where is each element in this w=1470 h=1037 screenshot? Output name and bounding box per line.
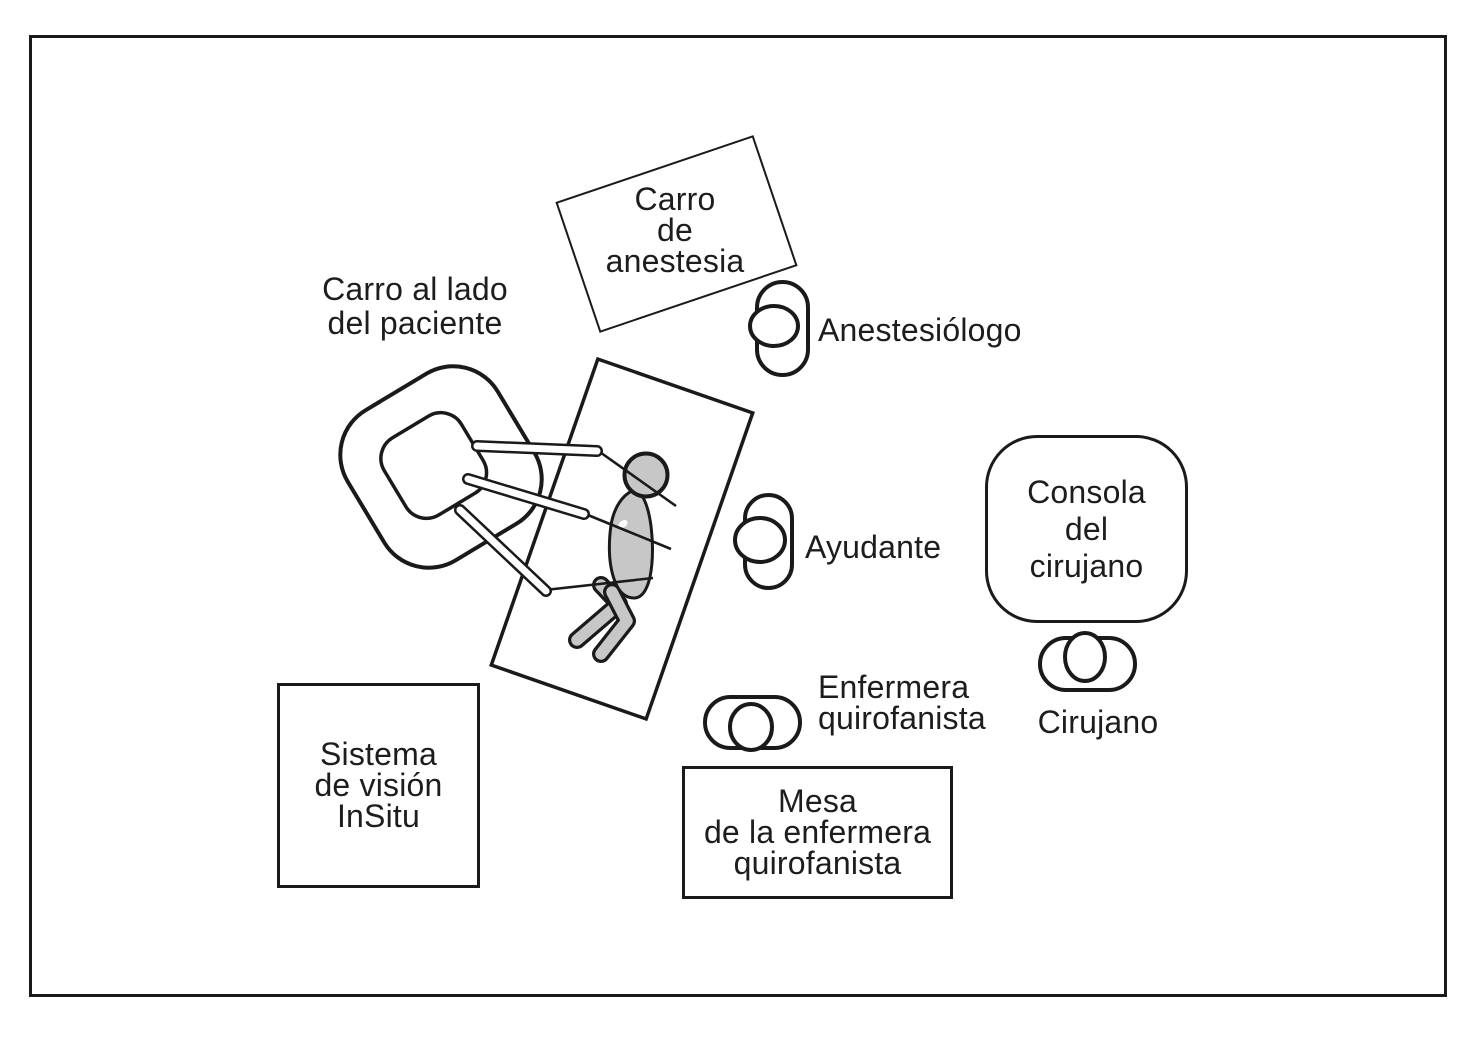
anesthesia-cart-label: Carro de anestesia (565, 184, 785, 277)
patient-side-cart (321, 347, 561, 587)
assistant-label: Ayudante (805, 530, 941, 564)
surgeon-console-label: Consola del cirujano (1027, 474, 1146, 585)
nurse-table-box: Mesa de la enfermera quirofanista (682, 766, 953, 899)
robot-arm (477, 446, 597, 451)
surgeon-person-icon (1040, 633, 1135, 690)
patient-cart-label: Carro al lado del paciente (300, 272, 530, 340)
operating-room-diagram: Carro de anestesia Consola del cirujano … (0, 0, 1470, 1037)
surgeon-label: Cirujano (1018, 705, 1178, 739)
vision-system-label: Sistema de visión InSitu (314, 739, 442, 832)
assistant-person-icon (735, 495, 792, 588)
vision-system-box: Sistema de visión InSitu (277, 683, 480, 888)
anesthesiologist-label: Anestesiólogo (818, 313, 1022, 347)
scrub-nurse-person-icon (705, 697, 800, 750)
anesthesiologist-person-icon (750, 282, 808, 375)
nurse-table-label: Mesa de la enfermera quirofanista (704, 786, 931, 879)
person-head (1065, 633, 1105, 681)
surgeon-console-box: Consola del cirujano (985, 435, 1188, 623)
person-head (735, 518, 785, 562)
person-head (730, 704, 772, 750)
scrub-nurse-label: Enfermera quirofanista (818, 672, 986, 734)
person-head (750, 306, 798, 346)
